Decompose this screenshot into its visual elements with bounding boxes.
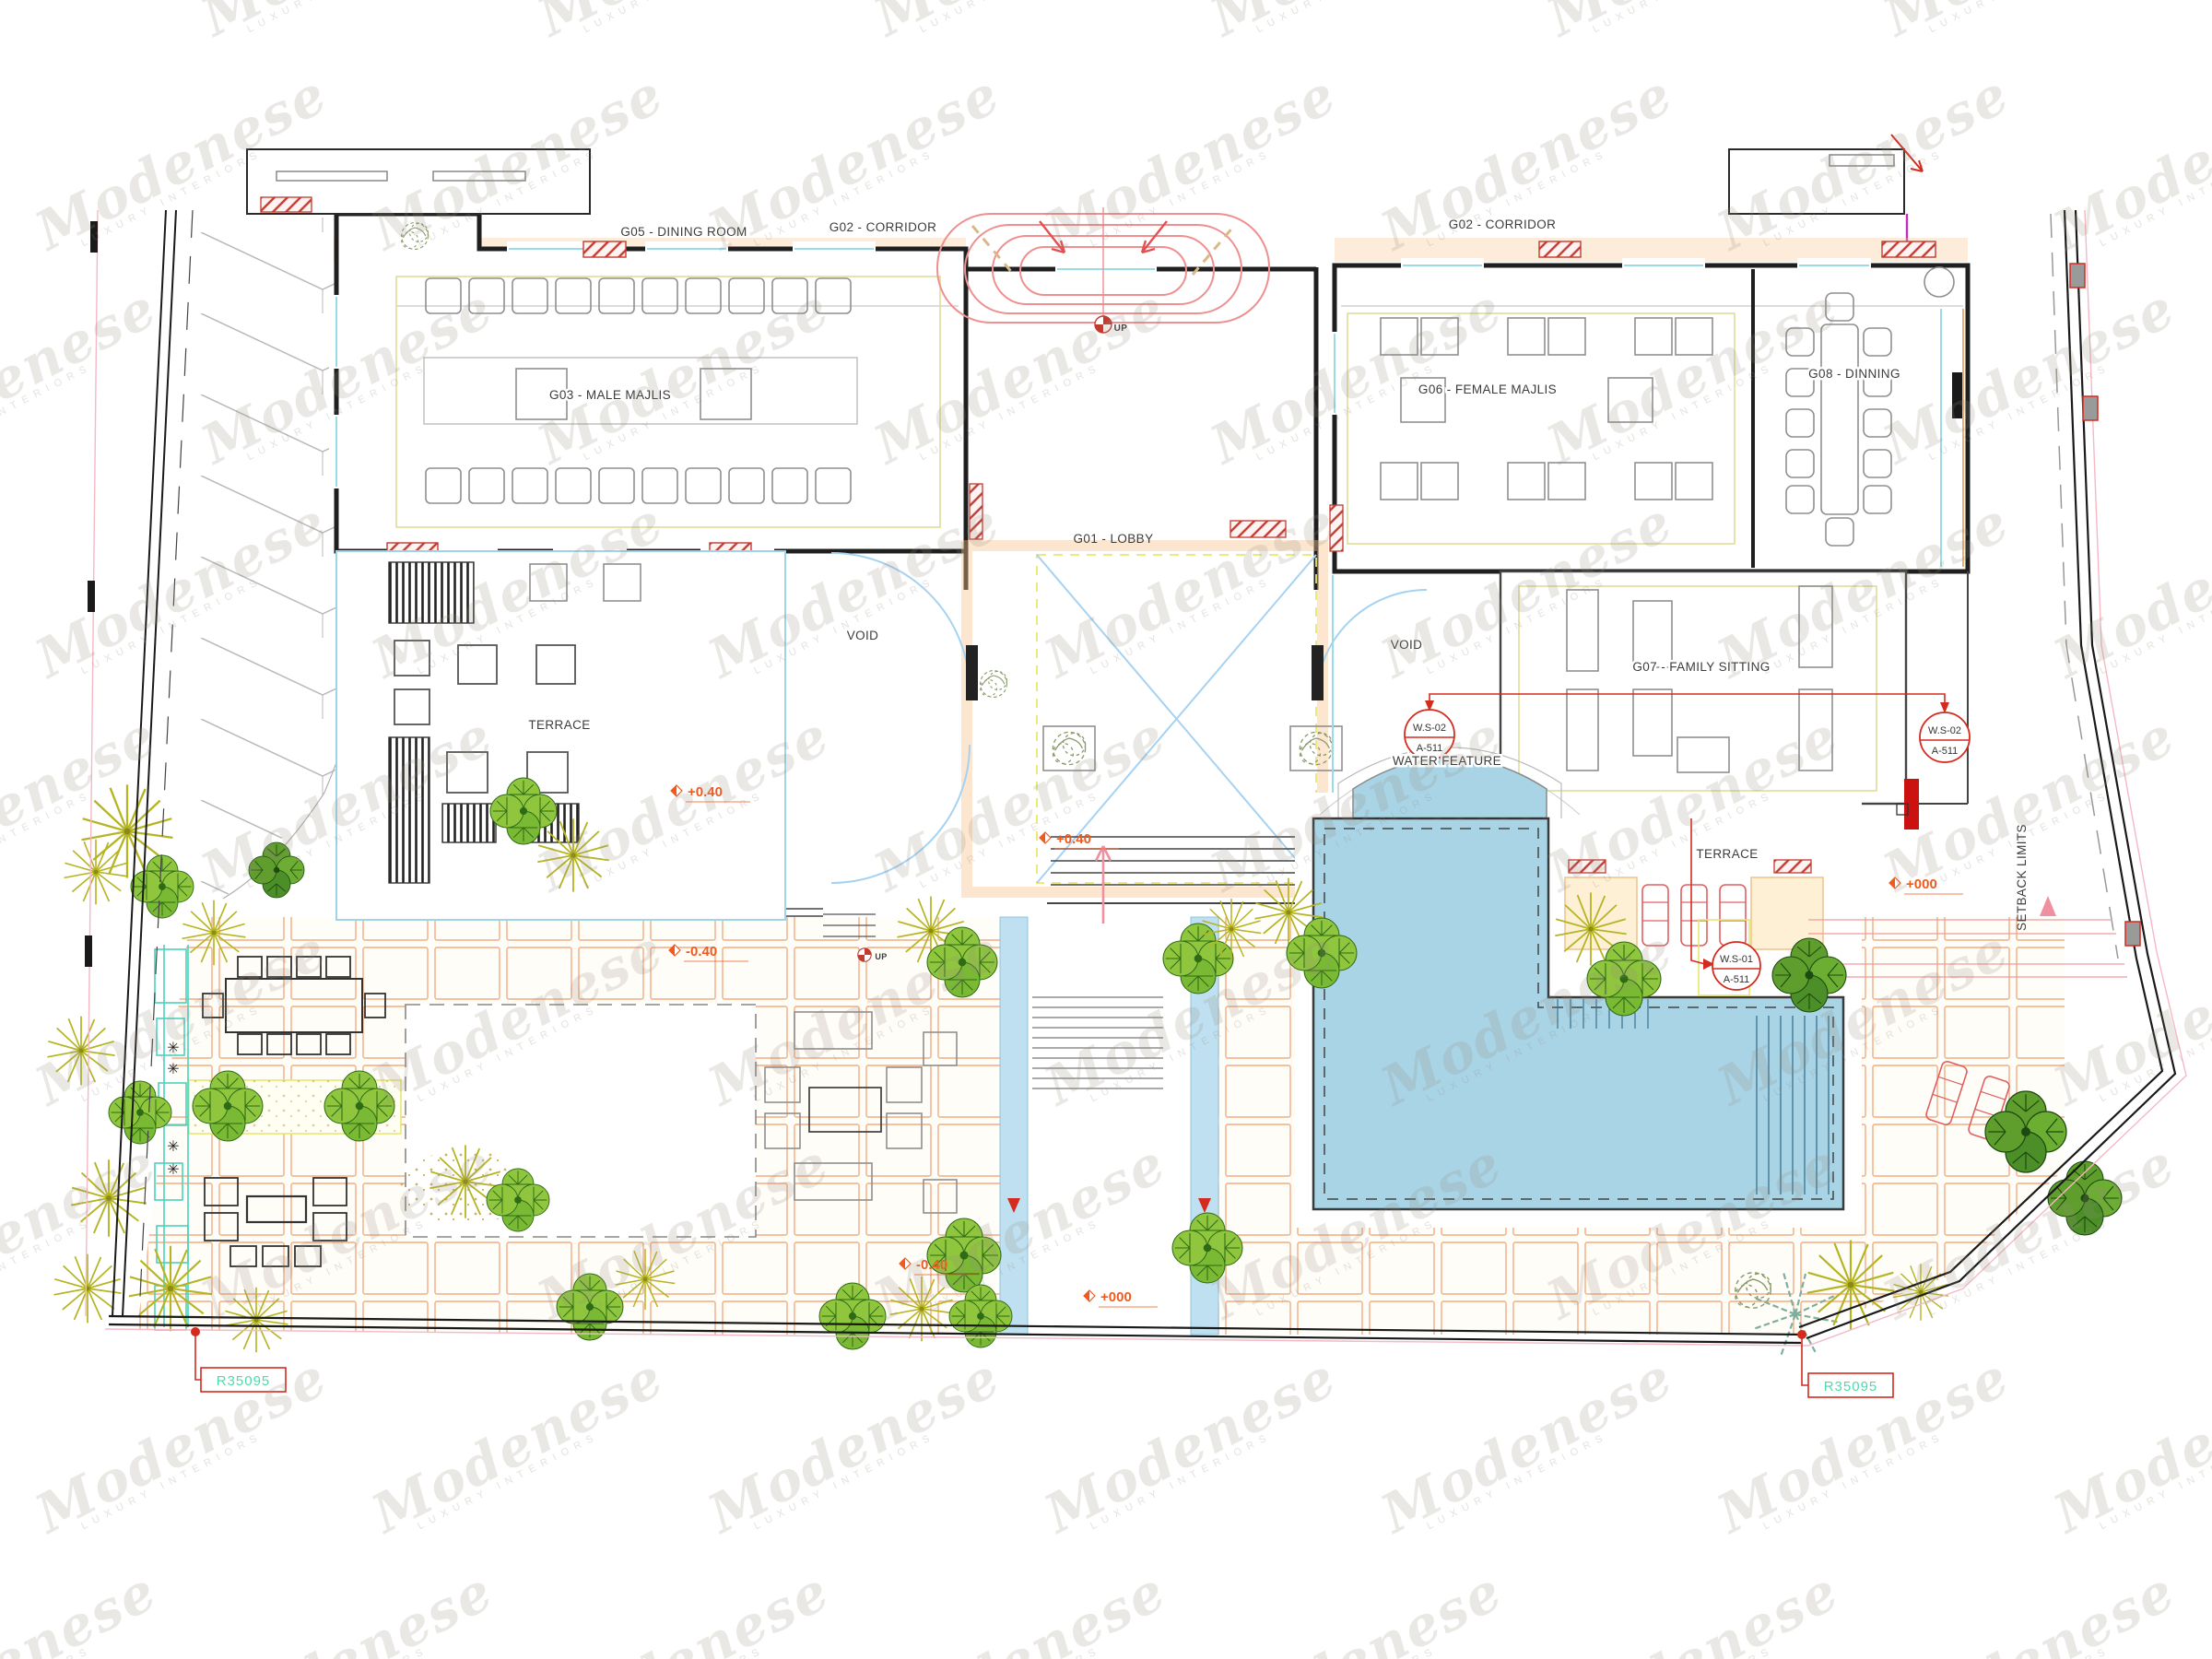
label-lobby: G01 - LOBBY xyxy=(1074,532,1154,546)
svg-text:+0.40: +0.40 xyxy=(1056,831,1091,847)
up-marker-entrance xyxy=(1095,316,1112,333)
svg-text:A-511: A-511 xyxy=(1724,974,1750,985)
north-annex-right xyxy=(1729,135,1923,247)
lawn-area xyxy=(399,1005,756,1237)
level-marker-east-garden: +000 xyxy=(1889,877,1963,894)
striped-daybed xyxy=(389,737,429,883)
console xyxy=(1952,372,1963,418)
svg-text:✳: ✳ xyxy=(167,1137,179,1155)
svg-text:✳: ✳ xyxy=(167,1060,179,1077)
label-corridor-right: G02 - CORRIDOR xyxy=(1449,218,1557,231)
label-water-feature: WATER FEATURE xyxy=(1393,754,1501,768)
label-void-left: VOID xyxy=(847,629,879,642)
north-annex-left xyxy=(247,149,590,214)
label-void-right: VOID xyxy=(1391,638,1423,652)
svg-text:-0.40: -0.40 xyxy=(916,1257,947,1273)
label-male-majlis: G03 - MALE MAJLIS xyxy=(549,388,671,402)
striped-sofa xyxy=(442,804,496,842)
svg-text:+000: +000 xyxy=(1100,1289,1132,1305)
level-marker-entrance: +0.40 xyxy=(1040,831,1119,849)
floor-plan-canvas: UP xyxy=(0,0,2212,1659)
label-female-majlis: G06 - FEMALE MAJLIS xyxy=(1418,382,1557,396)
label-setback-limits: SETBACK LIMITS xyxy=(2015,824,2029,931)
svg-text:A-511: A-511 xyxy=(1417,743,1443,754)
label-family-sitting: G07 - FAMILY SITTING xyxy=(1632,660,1770,674)
up-marker-garden xyxy=(858,948,871,961)
wall-hatch xyxy=(1230,521,1286,537)
up-label-garden: UP xyxy=(875,952,887,961)
label-dinning: G08 - DINNING xyxy=(1808,367,1900,381)
callout-ws02-left: W.S-02A-511 xyxy=(1405,710,1454,759)
male-majlis-wing xyxy=(329,214,966,559)
svg-text:R35095: R35095 xyxy=(217,1373,271,1389)
svg-text:✳: ✳ xyxy=(167,1039,179,1056)
label-terrace-left: TERRACE xyxy=(528,718,590,732)
setback-arrow-icon xyxy=(2040,896,2056,916)
svg-text:W.S-01: W.S-01 xyxy=(1720,954,1753,965)
floor-plan-drawing: UP xyxy=(0,0,2212,1659)
svg-text:+0.40: +0.40 xyxy=(688,784,723,800)
svg-text:W.S-02: W.S-02 xyxy=(1928,725,1961,736)
wall-hatch xyxy=(970,484,982,539)
wall-hatch xyxy=(1774,860,1811,873)
wall-hatch xyxy=(1569,860,1606,873)
striped-daybed xyxy=(389,562,474,623)
wall-hatch xyxy=(1330,505,1343,551)
svg-text:+000: +000 xyxy=(1906,877,1937,892)
label-terrace-pool: TERRACE xyxy=(1696,847,1758,861)
svg-text:W.S-02: W.S-02 xyxy=(1413,723,1446,734)
female-majlis-wing xyxy=(1327,238,1968,571)
terrace-left xyxy=(336,551,785,920)
label-dining-room: G05 - DINING ROOM xyxy=(620,225,747,239)
wall-hatch xyxy=(1539,241,1581,257)
entrance-oval-stairs xyxy=(937,207,1269,324)
wall-hatch xyxy=(583,241,626,257)
svg-text:R35095: R35095 xyxy=(1824,1379,1878,1394)
wall-hatch xyxy=(1882,241,1935,257)
callout-ws02-right: W.S-02A-511 xyxy=(1920,712,1970,762)
svg-text:✳: ✳ xyxy=(167,1160,179,1178)
svg-text:-0.40: -0.40 xyxy=(686,944,717,959)
label-corridor-left: G02 - CORRIDOR xyxy=(829,220,937,234)
up-label-entrance: UP xyxy=(1114,324,1128,334)
callout-ws01: W.S-01A-511 xyxy=(1712,942,1760,990)
water-channel-left xyxy=(1000,917,1028,1335)
svg-text:A-511: A-511 xyxy=(1932,746,1959,757)
